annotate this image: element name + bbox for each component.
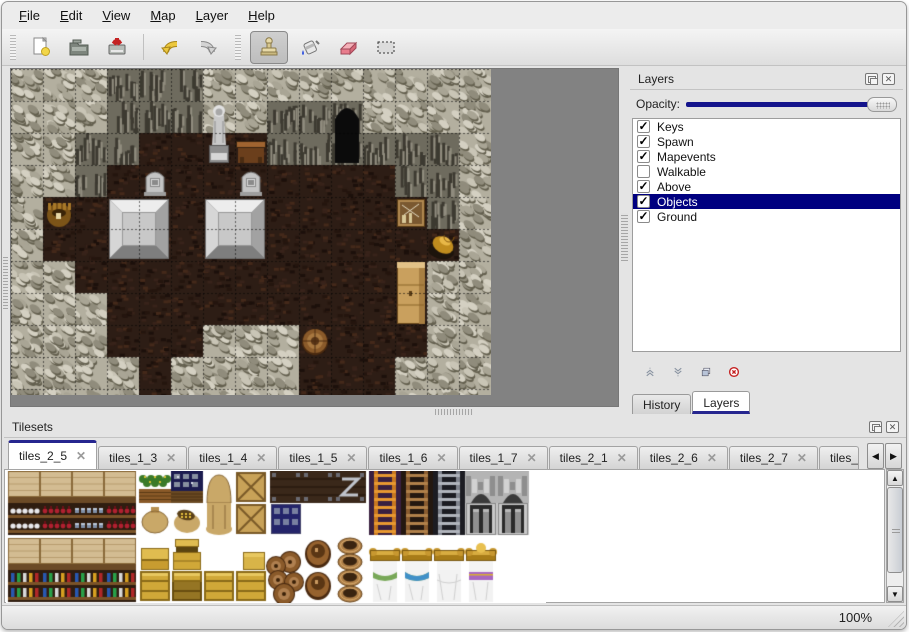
redo-icon [197,36,219,58]
tileset-tab-tiles_2_7[interactable]: tiles_2_7✕ [729,446,818,469]
tileset-tab-tiles_1_6[interactable]: tiles_1_6✕ [368,446,457,469]
map-canvas-frame [10,68,619,407]
close-panel-icon[interactable]: ✕ [882,73,895,85]
new-file-button[interactable] [25,32,57,62]
dock-tab-history[interactable]: History [632,394,691,414]
stamp-tool-button[interactable] [250,31,288,64]
scroll-up-icon[interactable]: ▲ [887,470,903,486]
tileset-tab-tiles_2_5[interactable]: tiles_2_5✕ [8,440,97,469]
layer-name-label: Above [657,180,691,194]
eraser-tool-icon [337,36,359,58]
undo-icon [159,36,181,58]
tab-scroll-buttons: ◀ ▶ [866,443,902,469]
dock-tab-layers[interactable]: Layers [692,391,750,414]
layer-visibility-checkbox[interactable]: ✓ [637,195,650,208]
layer-visibility-checkbox[interactable]: ✓ [637,180,650,193]
screenshot-stage: FileEditViewMapLayerHelp Layers ✕ Opacit… [0,0,909,632]
fill-tool-icon [299,36,321,58]
status-bar: 100% [2,605,906,629]
redo-button[interactable] [192,32,224,62]
tilesets-dock-title: Tilesets [12,420,53,434]
vertical-splitter-handle[interactable] [621,213,628,261]
tab-label: tiles_2_1 [560,451,608,465]
layer-visibility-checkbox[interactable] [637,165,650,178]
menu-item-layer[interactable]: Layer [189,5,236,26]
layer-row-objects[interactable]: ✓Objects [633,194,900,209]
layer-name-label: Objects [657,195,698,209]
tab-label: tiles_2_7 [740,451,788,465]
delete-layer-icon [728,361,740,383]
tab-label: tiles_1_4 [199,451,247,465]
layer-name-label: Mapevents [657,150,716,164]
zoom-level-label: 100% [839,610,872,625]
opacity-row: Opacity: [630,94,903,114]
layer-row-mapevents[interactable]: ✓Mapevents [633,149,900,164]
toolbar-separator [143,34,144,60]
toolbar [2,29,906,66]
tileset-tabbar: tiles_2_5✕tiles_1_3✕tiles_1_4✕tiles_1_5✕… [8,440,867,469]
left-splitter-handle[interactable] [3,257,8,309]
tileset-tab-tiles_2_6[interactable]: tiles_2_6✕ [639,446,728,469]
layer-row-keys[interactable]: ✓Keys [633,119,900,134]
scroll-tabs-right-button[interactable]: ▶ [885,443,902,469]
undo-button[interactable] [154,32,186,62]
duplicate-layer-icon [700,361,712,383]
opacity-slider-handle[interactable] [867,97,897,112]
menu-item-view[interactable]: View [95,5,137,26]
tab-close-icon[interactable]: ✕ [797,451,807,465]
menu-item-map[interactable]: Map [143,5,182,26]
tab-label: tiles_1_5 [289,451,337,465]
layer-name-label: Spawn [657,135,694,149]
layer-visibility-checkbox[interactable]: ✓ [637,135,650,148]
tab-label: tiles_1_7 [470,451,518,465]
layer-row-spawn[interactable]: ✓Spawn [633,134,900,149]
tab-label: tiles_2_5 [19,449,67,463]
tab-close-icon[interactable]: ✕ [346,451,356,465]
layer-buttons [630,357,903,387]
duplicate-layer-button[interactable] [694,360,718,384]
scrollbar-thumb[interactable] [887,487,903,573]
tab-label: tiles_1_3 [109,451,157,465]
open-icon [68,36,90,58]
tab-label: tiles_1_6 [379,451,427,465]
float-panel-icon[interactable] [869,421,882,433]
tab-close-icon[interactable]: ✕ [76,449,86,463]
tilesets-dock: Tilesets ✕ tiles_2_5✕tiles_1_3✕tiles_1_4… [4,416,907,608]
menu-item-edit[interactable]: Edit [53,5,89,26]
tileset-tab-tiles[interactable]: tiles_ [819,446,859,469]
opacity-label: Opacity: [636,97,680,111]
layer-name-label: Keys [657,120,684,134]
tab-close-icon[interactable]: ✕ [707,451,717,465]
tileset-tab-tiles_2_1[interactable]: tiles_2_1✕ [549,446,638,469]
app-window: FileEditViewMapLayerHelp Layers ✕ Opacit… [1,1,907,630]
select-tool-icon [375,36,397,58]
delete-layer-button[interactable] [722,360,746,384]
save-icon [106,36,128,58]
scroll-tabs-left-button[interactable]: ◀ [867,443,884,469]
move-layer-down-button[interactable] [666,360,690,384]
tileset-tab-tiles_1_3[interactable]: tiles_1_3✕ [98,446,187,469]
select-tool-button[interactable] [370,32,402,62]
scroll-down-icon[interactable]: ▼ [887,586,903,602]
tileset-tab-tiles_1_5[interactable]: tiles_1_5✕ [278,446,367,469]
tab-label: tiles_ [830,451,858,465]
tilesets-dock-titlebar: Tilesets ✕ [4,416,907,438]
toolbar-grip[interactable] [10,34,16,60]
toolbar-grip[interactable] [235,34,241,60]
save-button[interactable] [101,32,133,62]
tab-close-icon[interactable]: ✕ [436,451,446,465]
move-layer-down-icon [672,361,684,383]
tileset-tab-tiles_1_4[interactable]: tiles_1_4✕ [188,446,277,469]
stamp-tool-icon [258,36,280,58]
tab-close-icon[interactable]: ✕ [617,451,627,465]
opacity-slider-track[interactable] [686,102,895,107]
menu-item-help[interactable]: Help [241,5,282,26]
dock-bottom-tabs: HistoryLayers [630,390,903,414]
layer-row-ground[interactable]: ✓Ground [633,209,900,224]
move-layer-up-button[interactable] [638,360,662,384]
layer-row-walkable[interactable]: Walkable [633,164,900,179]
layers-dock-titlebar: Layers ✕ [630,68,903,90]
menu-item-file[interactable]: File [12,5,47,26]
opacity-slider[interactable] [686,96,897,112]
tileset-scrollbar[interactable]: ▲ ▼ [886,469,904,603]
layer-visibility-checkbox[interactable]: ✓ [637,120,650,133]
resize-grip[interactable] [888,611,904,627]
tileset-canvas[interactable] [6,471,546,603]
close-panel-icon[interactable]: ✕ [886,421,899,433]
layer-row-above[interactable]: ✓Above [633,179,900,194]
tileset-content [4,469,885,603]
move-layer-up-icon [644,361,656,383]
layer-visibility-checkbox[interactable]: ✓ [637,210,650,223]
float-panel-icon[interactable] [865,73,878,85]
tab-close-icon[interactable]: ✕ [166,451,176,465]
fill-tool-button[interactable] [294,32,326,62]
layer-name-label: Walkable [657,165,706,179]
menu-bar: FileEditViewMapLayerHelp [2,2,906,29]
horizontal-splitter-handle[interactable] [435,409,473,415]
layer-list: ✓Keys✓Spawn✓MapeventsWalkable✓Above✓Obje… [632,118,901,352]
tab-label: tiles_2_6 [650,451,698,465]
eraser-tool-button[interactable] [332,32,364,62]
layers-dock-title: Layers [638,72,674,86]
layer-visibility-checkbox[interactable]: ✓ [637,150,650,163]
layers-dock: Layers ✕ Opacity: ✓Keys✓Spawn✓MapeventsW… [630,68,903,414]
tab-close-icon[interactable]: ✕ [527,451,537,465]
new-file-icon [30,36,52,58]
layer-name-label: Ground [657,210,697,224]
tileset-tab-tiles_1_7[interactable]: tiles_1_7✕ [459,446,548,469]
map-canvas[interactable] [11,69,491,395]
tab-close-icon[interactable]: ✕ [256,451,266,465]
open-button[interactable] [63,32,95,62]
